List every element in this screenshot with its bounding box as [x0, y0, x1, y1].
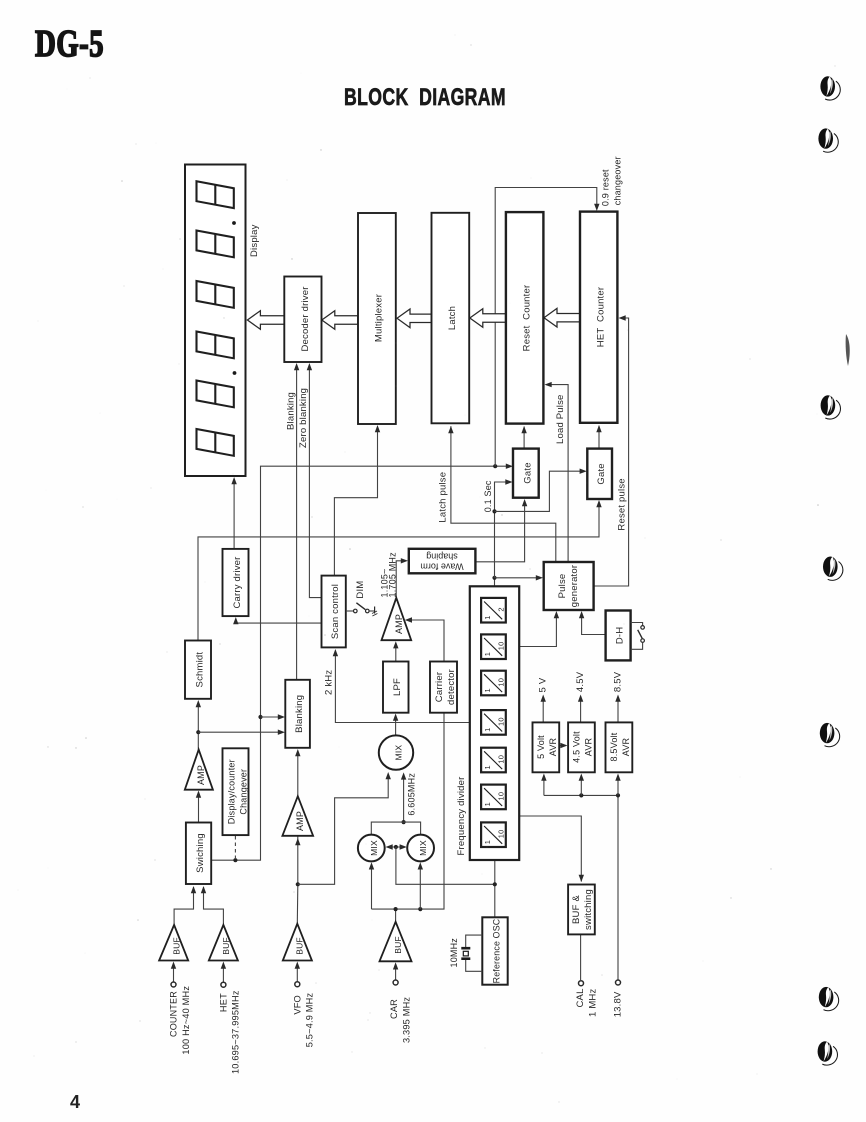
svg-text:1: 1 — [483, 802, 492, 806]
svg-text:Pulse: Pulse — [557, 574, 568, 599]
svg-text:1: 1 — [483, 765, 492, 769]
svg-text:changeover: changeover — [612, 156, 622, 205]
svg-text:switching: switching — [583, 889, 594, 930]
svg-text:2: 2 — [496, 607, 505, 611]
svg-text:AMP: AMP — [295, 811, 305, 831]
svg-text:Carrier: Carrier — [434, 672, 445, 702]
svg-text:1: 1 — [483, 728, 492, 732]
svg-text:AMP: AMP — [394, 614, 404, 634]
svg-text:Frequency divider: Frequency divider — [456, 777, 467, 856]
svg-text:BUF: BUF — [172, 937, 182, 955]
svg-text:0.9 reset: 0.9 reset — [600, 169, 610, 206]
svg-text:BUF: BUF — [295, 937, 305, 955]
svg-text:AVR: AVR — [584, 737, 594, 756]
svg-text:4.5 Volt: 4.5 Volt — [572, 731, 582, 763]
svg-text:8.5Volt: 8.5Volt — [609, 732, 619, 761]
svg-text:Decoder driver: Decoder driver — [300, 286, 311, 351]
svg-text:10: 10 — [496, 830, 505, 839]
svg-text:10MHz: 10MHz — [449, 938, 459, 968]
svg-text:BUF: BUF — [393, 936, 403, 954]
svg-text:2 kHz: 2 kHz — [324, 670, 335, 695]
svg-text:10.695~37.995MHz: 10.695~37.995MHz — [231, 990, 241, 1074]
svg-text:10: 10 — [496, 642, 505, 651]
svg-text:10: 10 — [496, 792, 505, 801]
svg-text:AVR: AVR — [548, 737, 558, 756]
svg-text:13.8V: 13.8V — [613, 991, 624, 1017]
svg-text:detector: detector — [446, 669, 457, 705]
svg-text:AMP: AMP — [196, 765, 206, 785]
svg-text:CAL: CAL — [575, 988, 586, 1007]
svg-text:Gate: Gate — [522, 462, 533, 483]
svg-text:BUF: BUF — [221, 937, 231, 955]
svg-text:Blanking: Blanking — [286, 392, 297, 430]
svg-text:Scan control: Scan control — [330, 584, 341, 639]
svg-text:CAR: CAR — [389, 999, 399, 1019]
svg-text:1: 1 — [483, 840, 492, 844]
svg-text:Reset Counter: Reset Counter — [521, 285, 532, 352]
svg-text:1: 1 — [483, 688, 492, 692]
svg-text:4.5V: 4.5V — [575, 671, 586, 692]
svg-text:HET: HET — [218, 993, 228, 1012]
svg-text:Reference OSC: Reference OSC — [492, 918, 502, 983]
svg-text:Swiching: Swiching — [195, 833, 206, 873]
svg-text:Reset pulse: Reset pulse — [616, 478, 627, 530]
svg-text:COUNTER: COUNTER — [169, 991, 179, 1037]
svg-text:1.705 MHz: 1.705 MHz — [388, 552, 398, 598]
svg-text:MIX: MIX — [418, 840, 428, 856]
svg-text:10: 10 — [496, 717, 505, 726]
svg-text:1: 1 — [483, 652, 492, 656]
svg-text:Wave form: Wave form — [420, 561, 463, 571]
svg-text:Zero blanking: Zero blanking — [298, 388, 309, 448]
svg-text:5.5~4.9 MHz: 5.5~4.9 MHz — [305, 993, 315, 1048]
svg-text:5 Volt: 5 Volt — [536, 735, 546, 759]
svg-text:10: 10 — [496, 755, 505, 764]
svg-text:Load Pulse: Load Pulse — [555, 394, 566, 444]
svg-text:AVR: AVR — [621, 737, 631, 756]
svg-text:5 V: 5 V — [538, 677, 549, 692]
svg-text:1 MHz: 1 MHz — [588, 989, 599, 1017]
svg-text:1: 1 — [483, 615, 492, 619]
svg-text:100 Hz~40 MHz: 100 Hz~40 MHz — [181, 986, 191, 1055]
svg-text:Latch: Latch — [447, 306, 458, 330]
svg-text:HET Counter: HET Counter — [596, 287, 607, 347]
svg-text:Display: Display — [249, 224, 260, 257]
svg-text:0.1 Sec: 0.1 Sec — [483, 480, 493, 512]
svg-text:D-H: D-H — [615, 627, 626, 645]
svg-text:3.395 MHz: 3.395 MHz — [402, 997, 412, 1043]
svg-text:8.5V: 8.5V — [613, 671, 624, 692]
svg-text:Carry driver: Carry driver — [232, 556, 243, 608]
svg-text:Changever: Changever — [239, 769, 249, 815]
svg-text:LPF: LPF — [392, 678, 403, 696]
svg-text:MIX: MIX — [394, 745, 404, 761]
svg-text:VFO: VFO — [292, 995, 302, 1015]
svg-text:DIM: DIM — [355, 581, 366, 599]
svg-text:Display/counter: Display/counter — [227, 759, 237, 824]
svg-text:shaping: shaping — [426, 551, 458, 561]
svg-text:Multiplexer: Multiplexer — [374, 294, 385, 342]
svg-text:generator: generator — [569, 565, 580, 607]
svg-text:Blanking: Blanking — [294, 695, 305, 733]
svg-text:10: 10 — [496, 678, 505, 687]
svg-text:Gate: Gate — [596, 463, 607, 484]
svg-text:Latch pulse: Latch pulse — [438, 472, 449, 523]
svg-text:MIX: MIX — [369, 840, 379, 856]
svg-text:Schmidt: Schmidt — [195, 652, 206, 688]
svg-text:BUF &: BUF & — [571, 895, 582, 924]
svg-text:6.605MHz: 6.605MHz — [406, 773, 416, 816]
